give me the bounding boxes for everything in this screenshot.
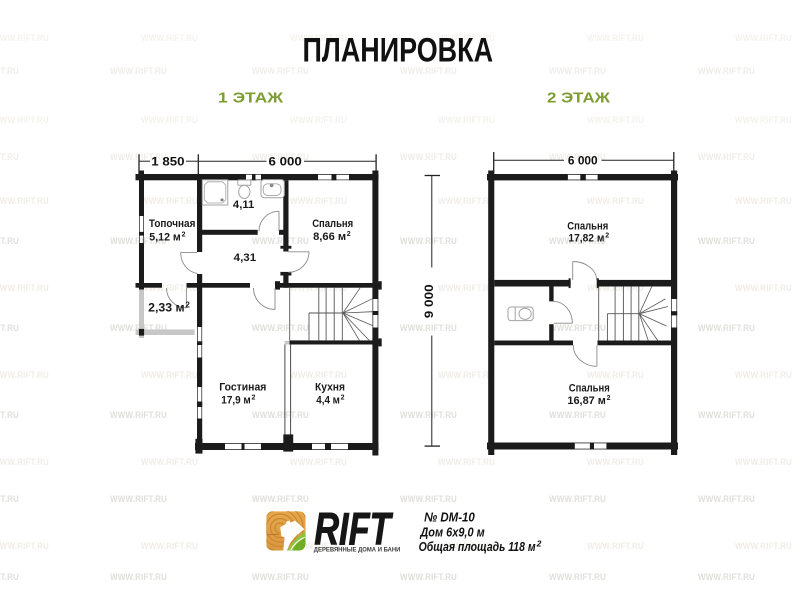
svg-text:№ DM-10: № DM-10 <box>424 509 475 524</box>
svg-text:6 000: 6 000 <box>269 156 302 168</box>
svg-text:9 000: 9 000 <box>422 284 436 318</box>
svg-text:ПЛАНИРОВКА: ПЛАНИРОВКА <box>303 32 494 70</box>
svg-text:2: 2 <box>607 395 611 402</box>
svg-text:2: 2 <box>185 300 190 309</box>
svg-text:Дом 6х9,0 м: Дом 6х9,0 м <box>420 525 485 540</box>
svg-text:Спальня: Спальня <box>312 218 353 230</box>
svg-text:4,4 м: 4,4 м <box>316 395 340 407</box>
svg-text:Спальня: Спальня <box>567 220 608 232</box>
svg-text:1 ЭТАЖ: 1 ЭТАЖ <box>218 89 284 106</box>
svg-text:6 000: 6 000 <box>568 155 598 167</box>
svg-text:5,12 м: 5,12 м <box>149 231 181 243</box>
svg-text:Кухня: Кухня <box>315 381 345 393</box>
svg-text:2 ЭТАЖ: 2 ЭТАЖ <box>547 89 610 106</box>
svg-text:16,87 м: 16,87 м <box>567 395 606 407</box>
svg-text:2: 2 <box>252 395 256 402</box>
svg-text:2: 2 <box>182 231 186 238</box>
svg-text:2: 2 <box>536 539 542 549</box>
svg-text:Гостиная: Гостиная <box>219 381 266 393</box>
svg-text:1 850: 1 850 <box>151 156 184 168</box>
svg-text:8,66 м: 8,66 м <box>313 231 346 243</box>
svg-text:17,82 м: 17,82 м <box>568 233 604 245</box>
svg-text:17,9 м: 17,9 м <box>221 395 251 407</box>
svg-text:2: 2 <box>605 233 609 240</box>
svg-text:2: 2 <box>347 231 351 238</box>
svg-text:Топочная: Топочная <box>149 218 196 230</box>
svg-text:Общая площадь 118 м: Общая площадь 118 м <box>419 539 536 554</box>
svg-text:4,31: 4,31 <box>234 252 257 264</box>
svg-text:4,11: 4,11 <box>233 199 254 211</box>
svg-text:2,33 м: 2,33 м <box>148 300 185 314</box>
svg-text:ДЕРЕВЯННЫЕ ДОМА И БАНИ: ДЕРЕВЯННЫЕ ДОМА И БАНИ <box>314 547 401 554</box>
svg-text:Спальня: Спальня <box>569 383 610 395</box>
svg-text:2: 2 <box>341 395 345 402</box>
